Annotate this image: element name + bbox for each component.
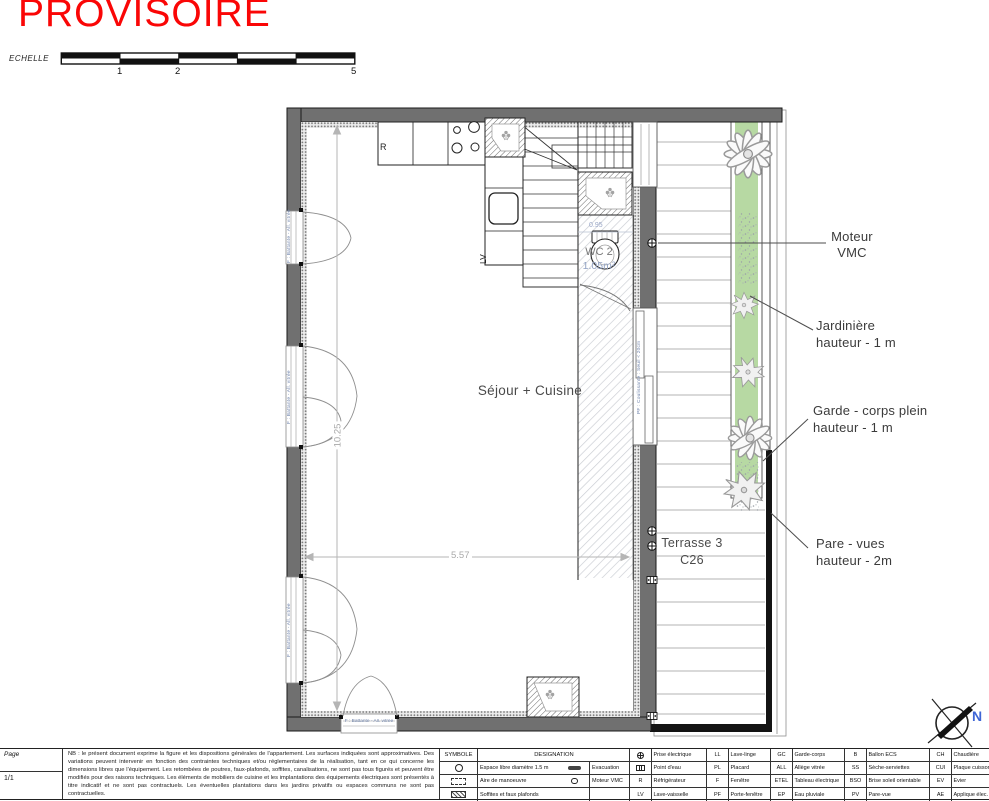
abbr-label: Lave-linge [729,749,771,762]
maneuver-area-icon [451,778,466,785]
annotation-garde-corps-line2: hauteur - 1 m [813,420,893,435]
power-outlet-icon [637,752,644,759]
abbr-label: Eau pluviale [793,788,845,801]
scale-tick-1: 1 [117,66,122,77]
annotation-jardiniere-line2: hauteur - 1 m [816,335,896,350]
window-label: F : Battante - All. vitrée [288,580,293,680]
door-label: F : Battante - All. vitrée [342,719,396,724]
abbr-label: Tableau électrique [793,775,845,788]
abbr-label: Réfrigérateur [652,775,707,788]
scale-label: ECHELLE [9,54,49,63]
abbr-key: PF [707,788,729,801]
abbr-key: CH [930,749,952,762]
provisoire-stamp: PROVISOIRE [18,0,271,36]
abbr-label: Prise électrique [652,749,707,762]
water-point-icon [636,765,645,771]
abbr-key: CUI [930,762,952,775]
abbr-key: F [707,775,729,788]
floor-plan-graphics [0,0,989,800]
planter [720,122,772,515]
abbr-label: Allège vitrée [793,762,845,775]
abbr-label: Brise soleil orientable [867,775,930,788]
annotation-pare-vues-line2: hauteur - 2m [816,553,892,568]
room-label-terrasse: Terrasse 3 [652,536,732,550]
abbr-label: Pare-vue [867,788,930,801]
terrace [650,110,786,736]
page-number: 1/1 [0,772,62,799]
abbr-key: B [845,749,867,762]
abbr-label: Garde-corps [793,749,845,762]
legend-row: Espace libre diamètre 1.5 m [478,762,560,775]
annotation-pare-vues-line1: Pare - vues [816,536,885,551]
abbr-key: LV [630,788,652,801]
scale-bar [61,53,355,64]
window-label: F : Battante - All. vitrée [288,214,293,263]
scale-tick-5: 5 [351,66,356,77]
power-outlet-icon [648,239,656,247]
legend-header-designation: DESIGNATION [478,749,630,762]
annotation-moteur-line2: VMC [812,245,892,260]
abbr-label: Placard [729,762,771,775]
legend-row: Soffites et faux plafonds [478,788,560,801]
abbr-label: Lave-vaisselle [652,788,707,801]
abbr-key: PL [707,762,729,775]
north-label: N [972,708,982,724]
legend-row: Moteur VMC [590,775,630,788]
water-point-icon [647,713,657,720]
water-point-icon [647,577,657,584]
abbr-key: ALL [771,762,793,775]
annotation-moteur-line1: Moteur [812,229,892,244]
symbol-legend: SYMBOLE DESIGNATION Espace libre diamètr… [440,749,630,799]
evacuation-icon [568,766,581,770]
room-label-sejour: Séjour + Cuisine [455,383,605,398]
abbr-label: Chaudière [952,749,989,762]
exterior-walls [287,108,782,731]
abbr-key: GC [771,749,793,762]
fridge-label: R [380,142,387,152]
abbr-key: LL [707,749,729,762]
abbr-label: Porte-fenêtre [729,788,771,801]
window-label-coulissante: PF : Coulissante : Seuil < 20cm [638,312,643,442]
legal-note: NB : le présent document exprime la figu… [63,749,440,799]
abbr-key: EP [771,788,793,801]
dimension-width: 5.57 [449,550,472,561]
abbr-key: R [630,775,652,788]
door-swing-arcs [303,212,397,716]
legend-row: Aire de manoeuvre [478,775,560,788]
legend-header-symbole: SYMBOLE [440,749,478,762]
abbr-key: ETEL [771,775,793,788]
terrace-edge [650,724,772,732]
dimension-wc: 0.95 [587,222,605,229]
abbr-key: AE [930,788,952,801]
abbr-label: Point d'eau [652,762,707,775]
vmc-motor-icon [571,778,578,785]
room-label-wc: WC 2 [576,246,622,258]
power-outlet-icon [648,527,656,535]
legend-row: Evacuation [590,762,630,775]
abbr-key: BSO [845,775,867,788]
abbr-label: Evier [952,775,989,788]
free-space-circle-icon [455,764,463,772]
window-hinges [299,208,399,719]
abbr-key: PV [845,788,867,801]
abbr-label: Fenêtre [729,775,771,788]
terrasse-code-label: C26 [652,553,732,567]
soffit-hatch-icon [451,791,466,798]
window-label: F : Battante - All. vitrée [288,349,293,445]
page-label: Page [0,749,62,772]
abbr-label: Applique élec. [952,788,989,801]
scale-tick-2: 2 [175,66,180,77]
abbreviation-legend: Prise électrique LL Lave-linge GC Garde-… [630,749,989,799]
abbr-key: EV [930,775,952,788]
abbr-label: Sèche-serviettes [867,762,930,775]
annotation-garde-corps-line1: Garde - corps plein [813,403,927,418]
wc-area-label: 1.05m² [572,260,626,272]
dishwasher-label: LV [478,254,488,264]
dimension-height: 10.25 [332,422,343,450]
abbr-key: SS [845,762,867,775]
abbr-label: Ballon ECS [867,749,930,762]
compass-icon [928,699,976,747]
pare-vue-screen [766,450,772,727]
annotation-jardiniere-line1: Jardinière [816,318,875,333]
groundcover-plants [738,212,757,284]
stairwell-grid [552,122,632,168]
page-panel: Page 1/1 [0,749,63,799]
abbr-label: Plaque cuisson [952,762,989,775]
sink-icon [489,193,518,224]
title-block: Page 1/1 NB : le présent document exprim… [0,748,989,800]
